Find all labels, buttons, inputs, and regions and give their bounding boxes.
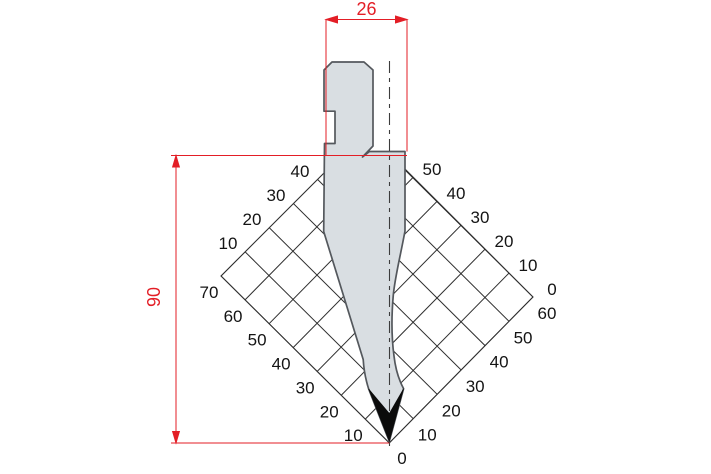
grid-label: 50 xyxy=(423,160,442,179)
grid-label: 60 xyxy=(224,307,243,326)
grid-label: 30 xyxy=(466,377,485,396)
grid-line xyxy=(160,119,463,420)
arrow-down-icon xyxy=(173,432,180,444)
grid-label: 20 xyxy=(320,402,339,421)
arrow-right-icon xyxy=(396,16,408,23)
grid-label: 70 xyxy=(200,283,219,302)
punch-outline xyxy=(324,62,405,441)
grid-label: 10 xyxy=(519,256,538,275)
grid-label: 40 xyxy=(490,353,509,372)
grid-label: 10 xyxy=(418,426,437,445)
grid-label: 20 xyxy=(442,401,461,420)
grid-label: 30 xyxy=(296,378,315,397)
grid-label: 0 xyxy=(547,280,556,299)
grid-label: 60 xyxy=(538,304,557,323)
grid-label: 40 xyxy=(291,162,310,181)
grid-label: 50 xyxy=(248,331,267,350)
arrow-left-icon xyxy=(326,16,338,23)
grid-label: 20 xyxy=(495,232,514,251)
grid-label: 0 xyxy=(397,449,406,468)
punch-technical-drawing: 1020304050607010203040506010203040010203… xyxy=(0,0,711,474)
grid-label: 30 xyxy=(471,208,490,227)
grid-label: 30 xyxy=(267,186,286,205)
grid-label: 40 xyxy=(447,184,466,203)
grid-label: 10 xyxy=(219,234,238,253)
drawing-canvas: 1020304050607010203040506010203040010203… xyxy=(0,0,711,474)
grid-label: 10 xyxy=(344,426,363,445)
grid-label: 50 xyxy=(514,328,533,347)
arrow-up-icon xyxy=(173,156,180,168)
height-dimension-label: 90 xyxy=(144,287,164,307)
width-dimension-label: 26 xyxy=(356,0,376,19)
grid-label: 20 xyxy=(243,210,262,229)
grid-label: 40 xyxy=(272,355,291,374)
